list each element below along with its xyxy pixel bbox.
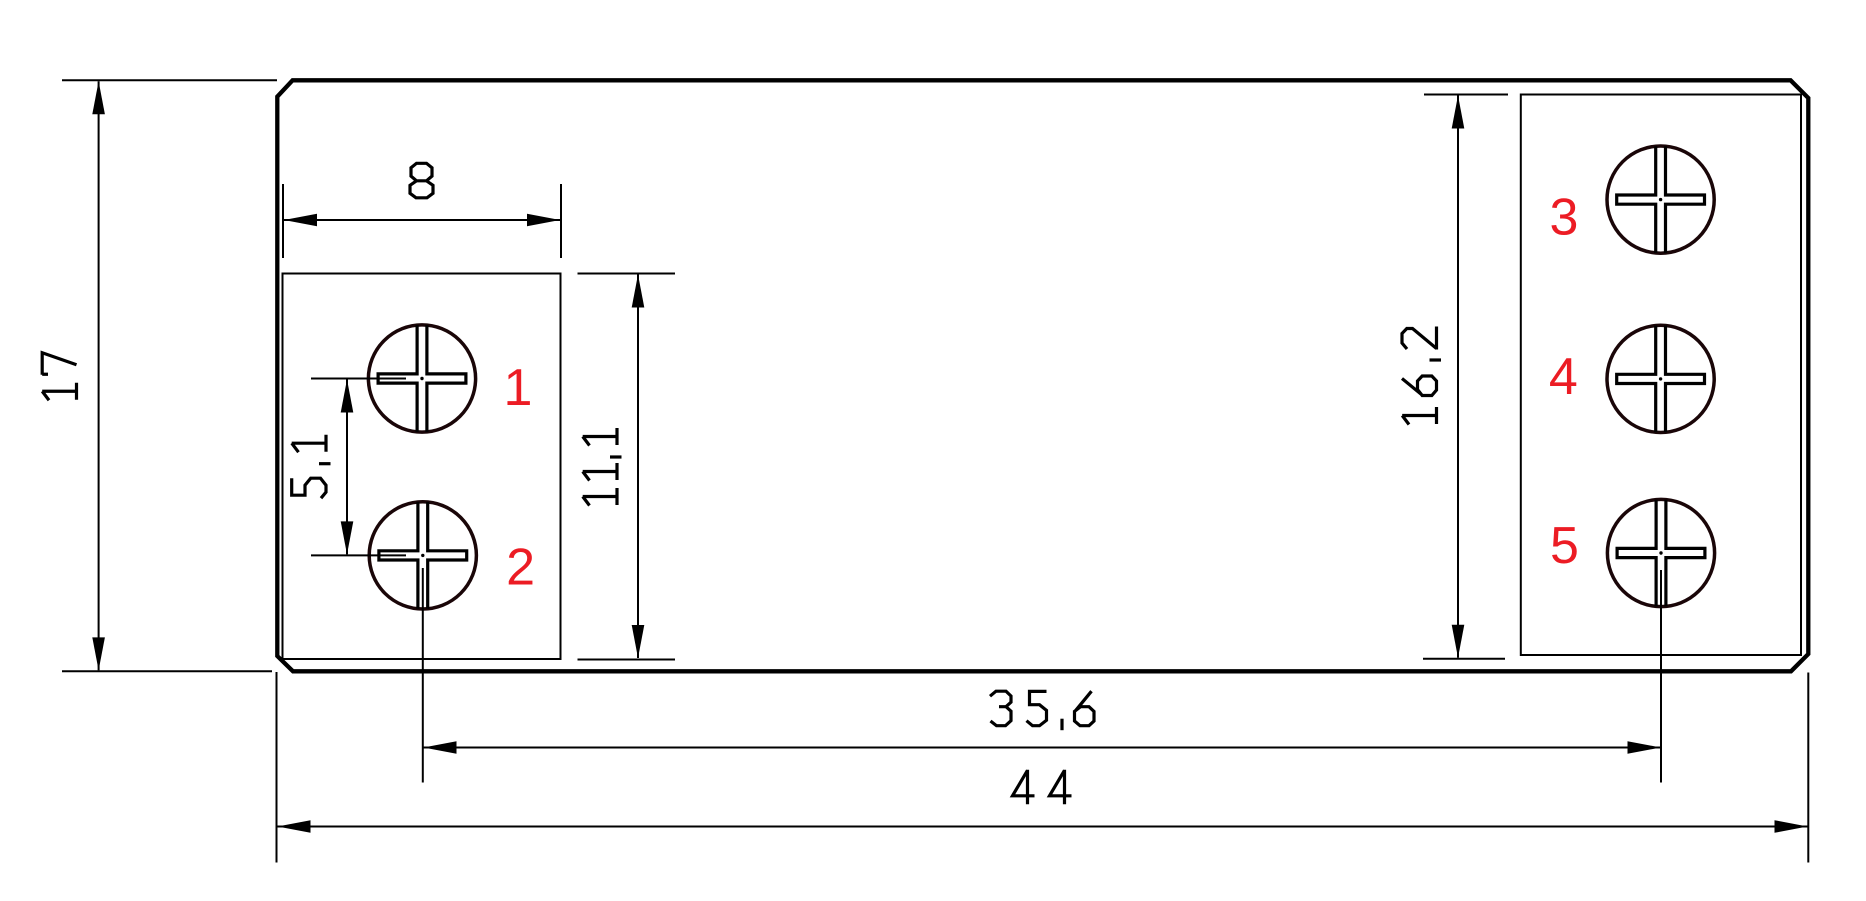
svg-text:2: 2 [506,539,535,597]
svg-text:3: 3 [1550,188,1579,246]
svg-text:5: 5 [1550,517,1579,575]
svg-text:1: 1 [504,359,533,417]
svg-text:4: 4 [1549,348,1578,406]
